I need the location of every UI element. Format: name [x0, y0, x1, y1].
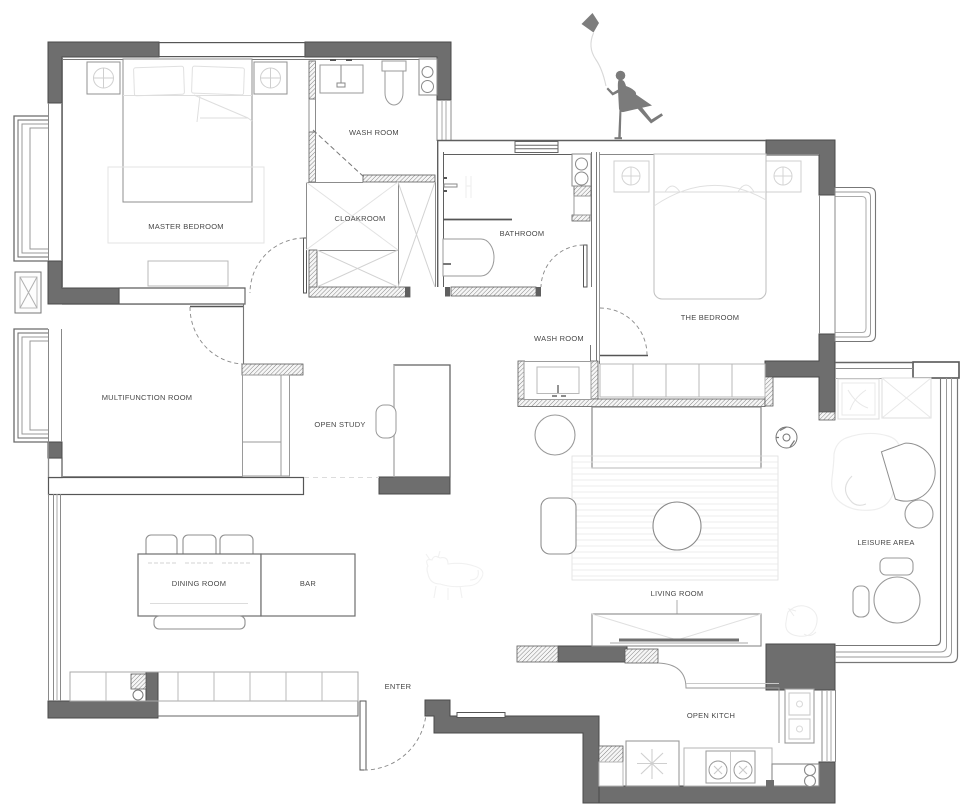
svg-text:LIVING ROOM: LIVING ROOM	[651, 589, 704, 598]
svg-text:OPEN STUDY: OPEN STUDY	[314, 420, 365, 429]
svg-text:BATHROOM: BATHROOM	[500, 229, 545, 238]
svg-text:CLOAKROOM: CLOAKROOM	[334, 214, 385, 223]
svg-text:MULTIFUNCTION ROOM: MULTIFUNCTION ROOM	[102, 393, 193, 402]
svg-text:OPEN KITCH: OPEN KITCH	[687, 711, 735, 720]
svg-text:WASH ROOM: WASH ROOM	[349, 128, 399, 137]
svg-text:BAR: BAR	[300, 579, 317, 588]
svg-text:THE BEDROOM: THE BEDROOM	[681, 313, 740, 322]
svg-text:DINING ROOM: DINING ROOM	[172, 579, 226, 588]
svg-text:WASH ROOM: WASH ROOM	[534, 334, 584, 343]
svg-text:MASTER BEDROOM: MASTER BEDROOM	[148, 222, 224, 231]
svg-text:LEISURE AREA: LEISURE AREA	[857, 538, 914, 547]
svg-text:ENTER: ENTER	[385, 682, 412, 691]
